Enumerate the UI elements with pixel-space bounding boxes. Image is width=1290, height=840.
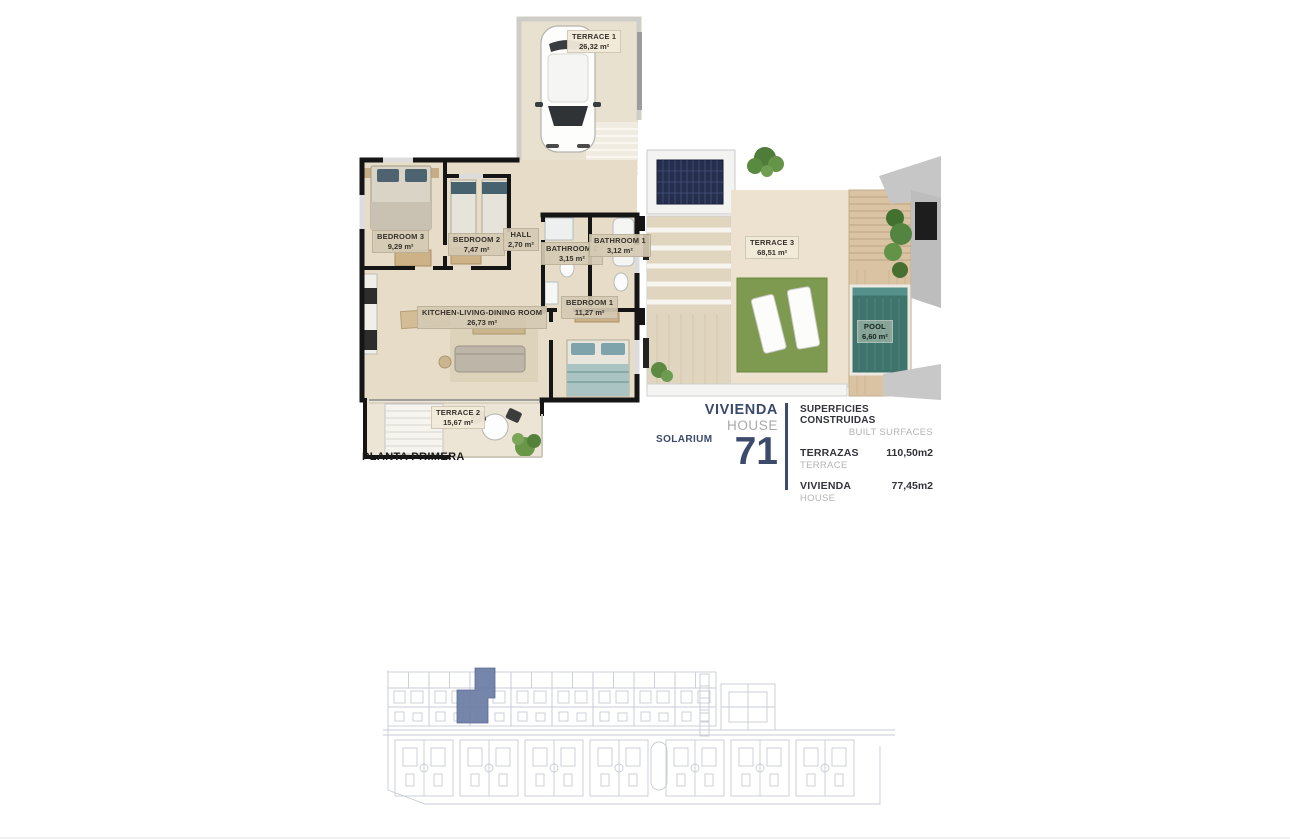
grass-lawn — [737, 278, 827, 372]
site-plan — [383, 662, 895, 822]
room-label-bathroom1: BATHROOM 1 3,12 m² — [589, 234, 651, 257]
room-label-hall: HALL 2,70 m² — [503, 228, 539, 251]
floorplan-sheet: TERRACE 1 26,32 m² BEDROOM 3 9,29 m² BED… — [0, 0, 1290, 840]
row-label-en: TERRACE — [800, 460, 933, 471]
room-name: BATHROOM 1 — [594, 236, 646, 246]
vertical-divider — [785, 403, 788, 490]
room-area: 2,70 m² — [508, 240, 534, 249]
room-name: BEDROOM 1 — [566, 298, 613, 308]
room-area: 11,27 m² — [566, 308, 613, 317]
room-label-bedroom3: BEDROOM 3 9,29 m² — [372, 230, 429, 253]
pergola-deck — [643, 216, 731, 384]
row-value: 77,45m2 — [892, 480, 933, 492]
room-name: TERRACE 3 — [750, 238, 794, 248]
surfaces-title-es: SUPERFICIES CONSTRUIDAS — [800, 404, 933, 426]
room-area: 6,60 m² — [862, 332, 888, 341]
surfaces-title-en: BUILT SURFACES — [800, 427, 933, 438]
unit-block: VIVIENDA HOUSE 71 — [704, 402, 778, 468]
room-label-terrace1: TERRACE 1 26,32 m² — [567, 30, 621, 53]
room-area: 26,73 m² — [422, 318, 542, 327]
room-area: 9,29 m² — [377, 242, 424, 251]
info-panel: SOLARIUM VIVIENDA HOUSE 71 SUPERFICIES C… — [648, 400, 948, 500]
room-name: TERRACE 2 — [436, 408, 480, 418]
solarium-plan-drawing — [643, 138, 943, 403]
solarium-plan: TERRACE 3 68,51 m² POOL 6,60 m² — [643, 138, 943, 403]
room-name: HALL — [508, 230, 534, 240]
room-label-kitchen: KITCHEN-LIVING-DINING ROOM 26,73 m² — [417, 306, 547, 329]
room-area: 26,32 m² — [572, 42, 616, 51]
surfaces-row-terrace: TERRAZAS 110,50m2 TERRACE — [800, 447, 933, 471]
room-area: 68,51 m² — [750, 248, 794, 257]
room-area: 7,47 m² — [453, 245, 500, 254]
room-name: KITCHEN-LIVING-DINING ROOM — [422, 308, 542, 318]
room-label-bedroom1: BEDROOM 1 11,27 m² — [561, 296, 618, 319]
room-label-bedroom2: BEDROOM 2 7,47 m² — [448, 233, 505, 256]
surfaces-row-house: VIVIENDA 77,45m2 HOUSE — [800, 480, 933, 504]
site-plan-drawing — [383, 662, 895, 822]
palm-plant — [747, 147, 784, 177]
row-label-en: HOUSE — [800, 493, 933, 504]
floor-title: PLANTA PRIMERA — [362, 451, 465, 463]
surfaces-table: SUPERFICIES CONSTRUIDAS BUILT SURFACES T… — [800, 404, 933, 504]
row-value: 110,50m2 — [886, 447, 933, 459]
room-area: 15,67 m² — [436, 418, 480, 427]
room-label-terrace3: TERRACE 3 68,51 m² — [745, 236, 799, 259]
unit-type-es: VIVIENDA — [704, 402, 778, 418]
room-name: POOL — [862, 322, 888, 332]
room-label-terrace2: TERRACE 2 15,67 m² — [431, 406, 485, 429]
solar-panel — [657, 160, 723, 204]
room-area: 3,12 m² — [594, 246, 646, 255]
unit-number: 71 — [704, 436, 778, 468]
first-floor-plan: TERRACE 1 26,32 m² BEDROOM 3 9,29 m² BED… — [355, 10, 645, 470]
highlighted-unit-71 — [457, 668, 495, 723]
room-name: BEDROOM 3 — [377, 232, 424, 242]
page-bottom-border — [0, 837, 1290, 839]
room-label-pool: POOL 6,60 m² — [857, 320, 893, 343]
room-name: BEDROOM 2 — [453, 235, 500, 245]
room-name: TERRACE 1 — [572, 32, 616, 42]
